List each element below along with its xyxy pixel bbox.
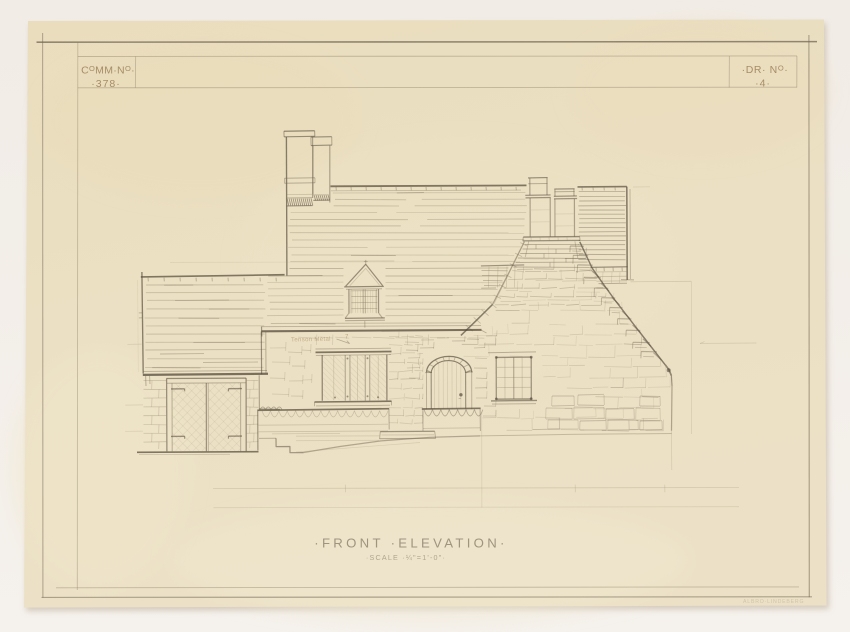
svg-text:ALBRO·LINDEBERG: ALBRO·LINDEBERG [743, 599, 804, 605]
svg-text:·4·: ·4· [755, 78, 771, 90]
svg-text:Tenson Metal: Tenson Metal [291, 336, 331, 344]
svg-text:·FRONT ·ELEVATION·: ·FRONT ·ELEVATION· [314, 536, 507, 551]
svg-text:·SCALE ·¼"=1'-0"·: ·SCALE ·¼"=1'-0"· [366, 553, 446, 562]
svg-text:·378·: ·378· [91, 78, 121, 90]
